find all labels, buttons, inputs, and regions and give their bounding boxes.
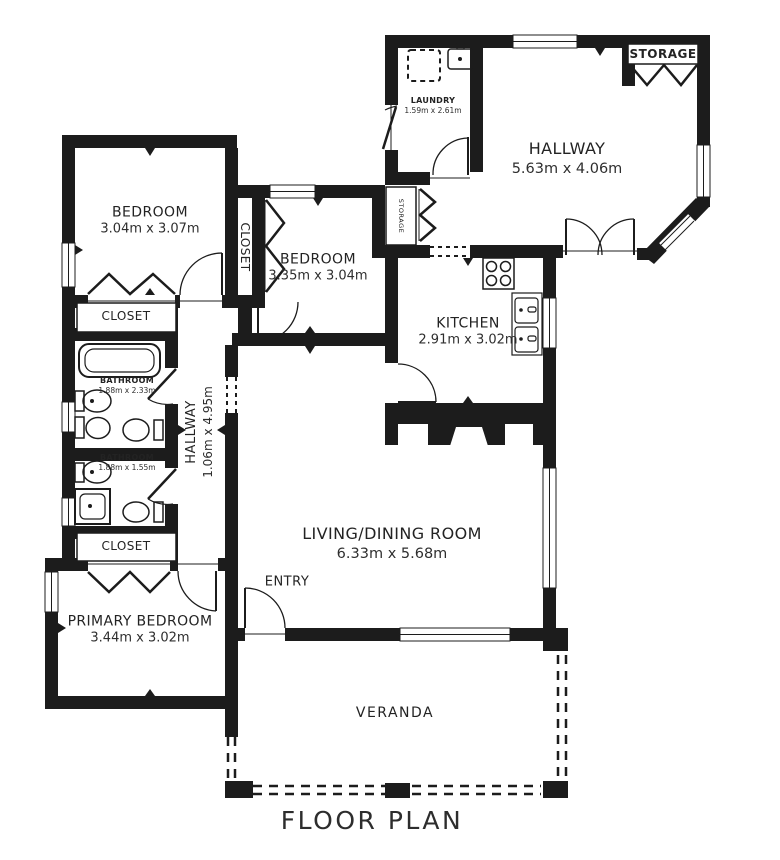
- room-name: STORAGE: [629, 47, 696, 63]
- room-name: CLOSET: [101, 309, 150, 325]
- room-label-bathroom-1: BATHROOM 1.88m x 2.33m: [98, 376, 155, 396]
- room-dims: 1.88m x 2.33m: [98, 386, 155, 396]
- door-bathroom-2: [148, 469, 176, 504]
- room-dims: 3.35m x 3.04m: [268, 269, 367, 286]
- room-dims: 1.59m x 2.61m: [404, 106, 461, 116]
- door-bedroom-1: [180, 253, 222, 295]
- room-label-closet-upper: CLOSET: [101, 309, 150, 325]
- room-label-entry: ENTRY: [265, 575, 310, 592]
- bifold-primary-closet: [88, 572, 170, 592]
- bathroom2-toilet-symbol: [123, 502, 163, 522]
- bathroom1-toilet-symbol: [75, 417, 110, 439]
- room-label-hallway-vertical: HALLWAY 1.06m x 4.95m: [184, 386, 216, 478]
- room-name: PRIMARY BEDROOM: [68, 612, 213, 630]
- room-name: CLOSET: [101, 539, 150, 555]
- bathroom1-bidet-symbol: [123, 419, 163, 441]
- room-dims: 1.88m x 1.55m: [98, 463, 155, 473]
- room-name: HALLWAY: [512, 139, 623, 160]
- bifold-storage-top: [630, 65, 697, 85]
- door-entry: [245, 588, 285, 628]
- room-dims: 3.04m x 3.07m: [100, 222, 199, 239]
- stove-symbol: [483, 258, 514, 289]
- room-name: VERANDA: [356, 704, 434, 722]
- room-name: LIVING/DINING ROOM: [302, 524, 482, 545]
- door-primary-bedroom: [178, 571, 216, 611]
- room-name: KITCHEN: [418, 314, 517, 332]
- room-label-bathroom-2: BATHROOM 1.88m x 1.55m: [98, 453, 155, 473]
- bathtub-symbol: [79, 344, 160, 377]
- bifold-bedroom1-closet: [88, 274, 175, 294]
- room-label-kitchen: KITCHEN 2.91m x 3.02m: [418, 314, 517, 349]
- room-label-storage-top: STORAGE: [629, 47, 696, 63]
- room-name: BEDROOM: [100, 203, 199, 221]
- page-title: FLOOR PLAN: [281, 805, 463, 838]
- room-dims: 5.63m x 4.06m: [512, 160, 623, 179]
- room-dims: 1.06m x 4.95m: [201, 386, 217, 478]
- washer-symbol: [408, 50, 440, 81]
- room-name: BEDROOM: [268, 250, 367, 268]
- room-name: BATHROOM: [98, 376, 155, 386]
- room-label-laundry: LAUNDRY 1.59m x 2.61m: [404, 96, 461, 116]
- room-dims: 3.44m x 3.02m: [68, 631, 213, 648]
- door-laundry-inner: [433, 137, 468, 175]
- floor-plan: BEDROOM 3.04m x 3.07m BEDROOM 3.35m x 3.…: [0, 0, 780, 860]
- dashed-opening-kitchen: [430, 245, 470, 258]
- shower-symbol: [75, 489, 110, 524]
- room-label-hallway-top: HALLWAY 5.63m x 4.06m: [512, 139, 623, 179]
- double-door-hallway: [566, 219, 634, 255]
- room-label-veranda: VERANDA: [356, 704, 434, 722]
- room-dims: 2.91m x 3.02m: [418, 333, 517, 350]
- room-name: STORAGE: [397, 199, 405, 233]
- door-kitchen: [398, 364, 436, 402]
- floor-plan-drawing: [0, 0, 780, 860]
- fireplace-niches: [398, 424, 533, 446]
- room-dims: 6.33m x 5.68m: [302, 545, 482, 564]
- room-label-bedroom-1: BEDROOM 3.04m x 3.07m: [100, 203, 199, 238]
- veranda-dashed-walls: [228, 655, 566, 794]
- room-name: CLOSET: [236, 222, 252, 271]
- room-label-closet-lower: CLOSET: [101, 539, 150, 555]
- room-label-closet-vertical: CLOSET: [236, 222, 252, 271]
- room-name: LAUNDRY: [404, 96, 461, 106]
- room-name: BATHROOM: [98, 453, 155, 463]
- door-laundry-side: [383, 106, 397, 149]
- room-label-bedroom-2: BEDROOM 3.35m x 3.04m: [268, 250, 367, 285]
- room-name: HALLWAY: [184, 386, 201, 478]
- room-name: ENTRY: [265, 575, 310, 592]
- room-label-living-dining: LIVING/DINING ROOM 6.33m x 5.68m: [302, 524, 482, 564]
- bifold-storage-mid: [420, 189, 435, 241]
- room-label-storage-mid: STORAGE: [397, 199, 405, 233]
- dashed-opening-hallway: [225, 377, 238, 413]
- room-label-primary-bedroom: PRIMARY BEDROOM 3.44m x 3.02m: [68, 612, 213, 647]
